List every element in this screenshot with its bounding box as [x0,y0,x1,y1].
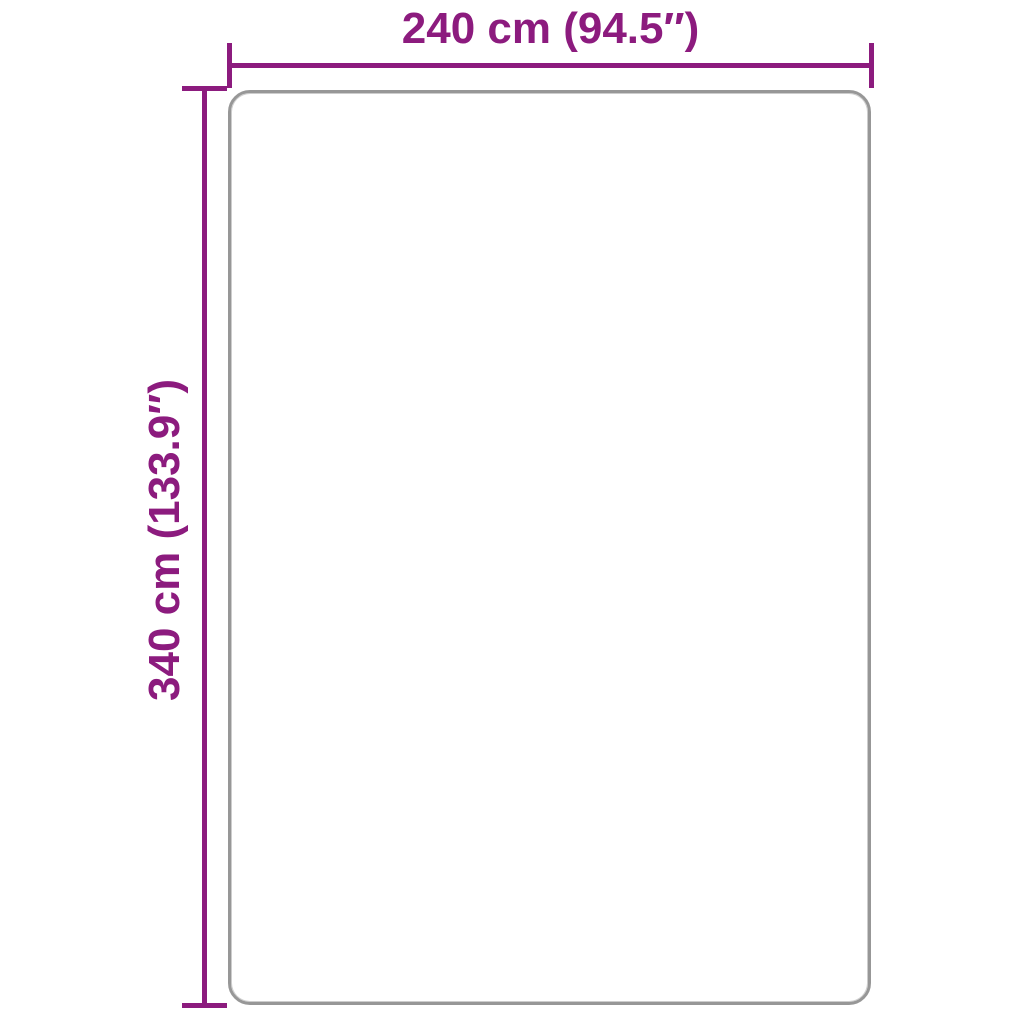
height-dimension-line [202,88,207,1006]
width-dimension-line [229,63,872,68]
height-dimension-label: 340 cm (133.9″) [140,379,190,701]
rug-dimension-diagram: 240 cm (94.5″) 340 cm (133.9″) [0,0,1024,1024]
height-dimension-tick-bottom [182,1003,227,1008]
product-outline [228,90,871,1005]
width-dimension-label: 240 cm (94.5″) [229,4,872,54]
height-dimension-tick-top [182,86,227,91]
